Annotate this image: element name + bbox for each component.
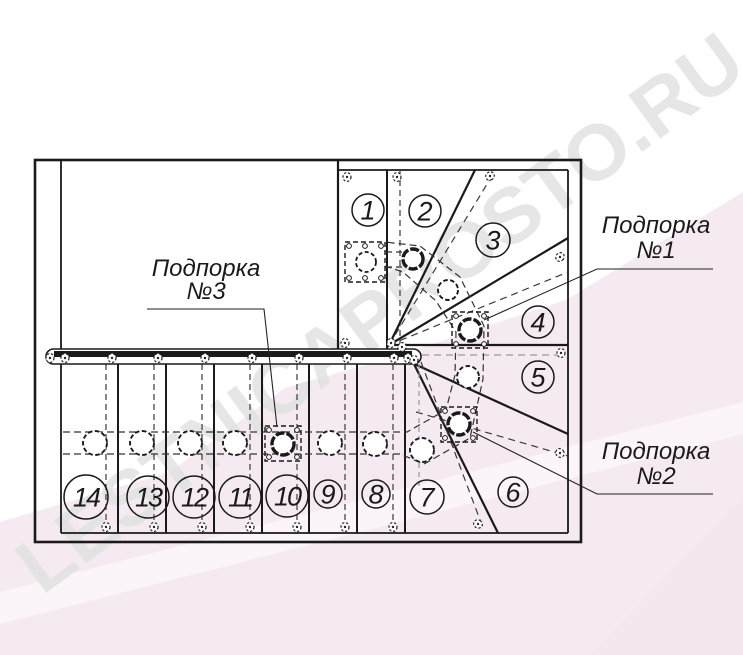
glyph-dot (390, 342, 392, 344)
baluster-section-icon (554, 251, 566, 263)
support-label-number: №2 (636, 463, 675, 490)
bolt-icon (267, 455, 272, 460)
glyph-dot (249, 526, 251, 528)
staircase-plan-canvas: LESTNICAPROSTO.RU (0, 0, 743, 655)
baluster-section-icon (61, 354, 69, 363)
baluster-icon (83, 431, 107, 455)
handrail (46, 349, 421, 364)
baluster-icon (318, 431, 342, 455)
step-number: 9 (320, 480, 335, 510)
bolt-icon (363, 244, 368, 249)
bolt-icon (443, 436, 448, 441)
glyph-dot (251, 357, 253, 359)
bolt-icon (347, 244, 352, 249)
bolt-icon (471, 436, 476, 441)
baluster-section-icon (387, 339, 395, 348)
support-post-icon (448, 413, 470, 435)
glyph-dot (157, 357, 159, 359)
baluster-section-icon (150, 523, 158, 532)
baluster-section-icon (410, 356, 418, 365)
baluster-section-icon (46, 354, 54, 363)
glyph-dot (111, 357, 113, 359)
newel-post-icon (403, 249, 423, 269)
glyph-dot (346, 176, 348, 178)
baluster-section-icon (201, 354, 209, 363)
glyph-dot (392, 526, 394, 528)
bolt-icon (379, 276, 384, 281)
glyph-dot (560, 352, 562, 354)
glyph-dot (153, 526, 155, 528)
baluster-section-icon (295, 354, 303, 363)
bolt-icon (482, 342, 487, 347)
support-label: Подпорка (602, 438, 711, 465)
baluster-section-icon (343, 173, 351, 182)
baluster-icon (130, 431, 154, 455)
step-number: 11 (228, 483, 252, 513)
step-number: 3 (485, 226, 500, 256)
glyph-dot (296, 526, 298, 528)
glyph-dot (204, 357, 206, 359)
baluster-section-icon (108, 354, 116, 363)
baluster-section-icon (198, 523, 206, 532)
step-number: 10 (274, 482, 302, 512)
glyph-dot (105, 526, 107, 528)
glyph-dot (344, 526, 346, 528)
glyph-dot (344, 342, 346, 344)
bolt-icon (295, 455, 300, 460)
step-number: 13 (135, 483, 163, 513)
baluster-icon (457, 366, 479, 388)
step-number: 14 (73, 483, 100, 513)
baluster-section-icon (341, 339, 349, 348)
baluster-section-icon (154, 354, 162, 363)
baluster-section-icon (248, 354, 256, 363)
baluster-section-icon (343, 354, 351, 363)
baluster-section-icon (390, 354, 398, 363)
support-label-number: №3 (186, 278, 226, 305)
baluster-icon (363, 432, 387, 456)
baluster-icon (438, 280, 458, 300)
step-number: 1 (360, 196, 375, 226)
step-number: 2 (416, 197, 432, 227)
baluster-section-icon (393, 173, 401, 182)
support-label-number: №1 (636, 237, 675, 264)
step-number: 5 (530, 363, 546, 393)
glyph-dot (298, 357, 300, 359)
bolt-icon (267, 428, 272, 433)
step-number: 7 (419, 483, 435, 513)
step-number: 8 (368, 480, 383, 510)
glyph-dot (393, 357, 395, 359)
glyph-dot (346, 357, 348, 359)
baluster-section-icon (246, 523, 254, 532)
baluster-section-icon (293, 523, 301, 532)
step-number: 4 (530, 308, 545, 338)
bolt-icon (454, 314, 459, 319)
bolt-icon (443, 409, 448, 414)
support-post-icon (459, 319, 481, 341)
baluster-icon (178, 431, 202, 455)
baluster-section-icon (389, 523, 397, 532)
glyph-dot (64, 357, 66, 359)
bolt-icon (347, 276, 352, 281)
glyph-dot (49, 357, 51, 359)
baluster-section-icon (557, 349, 565, 358)
glyph-dot (407, 357, 409, 359)
support-post-icon (272, 433, 294, 455)
baluster-section-icon (102, 523, 110, 532)
glyph-dot (396, 176, 398, 178)
step-number: 6 (505, 478, 521, 508)
baluster-icon (223, 431, 247, 455)
glyph-dot (413, 359, 415, 361)
support-label: Подпорка (602, 212, 711, 239)
bolt-icon (379, 244, 384, 249)
bolt-icon (482, 314, 487, 319)
baluster-icon (356, 252, 376, 272)
bolt-icon (471, 409, 476, 414)
step-number: 12 (181, 483, 209, 513)
baluster-icon (410, 438, 434, 462)
glyph-dot (201, 526, 203, 528)
baluster-section-icon (341, 523, 349, 532)
bolt-icon (363, 276, 368, 281)
bolt-icon (454, 342, 459, 347)
bolt-icon (295, 428, 300, 433)
